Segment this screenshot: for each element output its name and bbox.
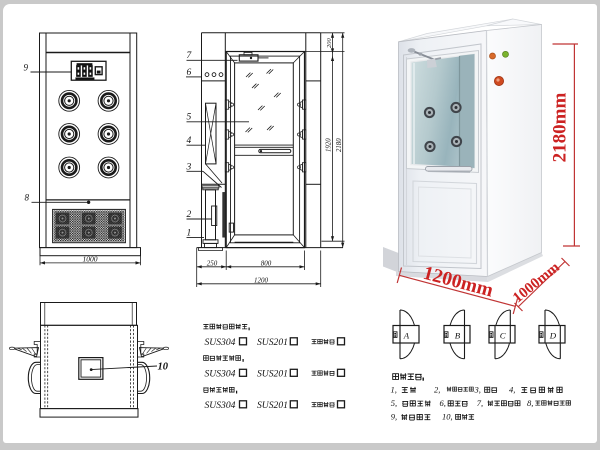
svg-text:SUS304: SUS304 xyxy=(205,400,236,411)
svg-text:2180: 2180 xyxy=(336,138,343,152)
svg-text:9,: 9, xyxy=(391,412,397,422)
svg-text:B: B xyxy=(455,330,461,340)
svg-text:SUS201: SUS201 xyxy=(257,368,288,379)
svg-text:4: 4 xyxy=(187,136,192,146)
svg-text:2,: 2, xyxy=(434,384,440,394)
svg-text:8,: 8, xyxy=(527,398,533,408)
svg-text:8: 8 xyxy=(25,193,30,203)
svg-text:5,: 5, xyxy=(391,398,397,408)
svg-text:6,: 6, xyxy=(440,398,446,408)
svg-text:1200: 1200 xyxy=(254,276,269,284)
svg-text:3,: 3, xyxy=(474,384,481,394)
svg-text:7: 7 xyxy=(187,51,193,61)
svg-text:2: 2 xyxy=(187,210,192,220)
svg-text:1000: 1000 xyxy=(83,255,98,264)
svg-text:SUS304: SUS304 xyxy=(205,368,236,379)
svg-text:SUS304: SUS304 xyxy=(205,337,236,348)
svg-text:A: A xyxy=(403,330,410,340)
svg-text:7,: 7, xyxy=(477,398,483,408)
svg-text:SUS201: SUS201 xyxy=(257,337,288,348)
svg-text:9: 9 xyxy=(24,63,29,73)
svg-text:5: 5 xyxy=(187,113,192,123)
svg-text:4,: 4, xyxy=(509,384,515,394)
svg-text:800: 800 xyxy=(261,259,272,267)
svg-text:D: D xyxy=(549,330,557,340)
svg-text:1,: 1, xyxy=(391,384,397,394)
svg-text:10,: 10, xyxy=(442,412,453,422)
svg-text:250: 250 xyxy=(207,259,218,267)
svg-text:10: 10 xyxy=(158,362,169,373)
svg-text:1920: 1920 xyxy=(326,138,333,152)
svg-text:SUS201: SUS201 xyxy=(257,400,288,411)
svg-text:2180mm: 2180mm xyxy=(550,93,571,163)
svg-text:200: 200 xyxy=(326,38,333,49)
svg-text:C: C xyxy=(500,330,506,340)
